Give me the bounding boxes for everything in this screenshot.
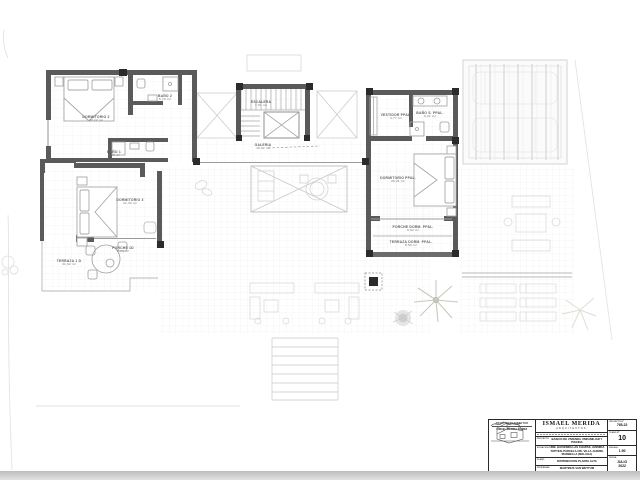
cell-plano-num: PLANO Nº 10 (608, 431, 636, 446)
room-label-bano-ppal: BAÑO S. PPAL.6,21 m² (406, 111, 454, 119)
firm-header: ISMAEL MERIDA ARQUITECTOS (536, 420, 608, 433)
row-plano: PLANO DISTRIBUCION PLANTA ALTA (536, 458, 608, 466)
signature-icon (489, 420, 523, 428)
firm-subtitle: ARQUITECTOS (536, 428, 608, 430)
title-block: ARQUITECTO DIRECTOR ISMAEL MERIDA GOMEZ … (488, 419, 637, 472)
floor-plan-canvas (0, 0, 640, 480)
edge-plant (2, 256, 18, 275)
pergola-roof (463, 60, 567, 164)
room-label-bano-2: BAÑO 25,76 m² (143, 94, 187, 102)
bed-dormitorio-3 (77, 177, 117, 246)
room-label-dormitorio-2: DORMITORIO 222,22 m² (66, 115, 126, 123)
title-block-meta: PROYECTO Nº 765-22 PLANO Nº 10 ESCALA 1:… (608, 420, 636, 471)
room-label-porche-dorm-ppal: PORCHE DORM. PPAL.9,02 m² (381, 225, 445, 233)
row-situacion: SITUACION URB. HACIENDA LAS CHAPAS, AVEN… (536, 446, 608, 458)
garden-steps (272, 338, 338, 400)
cell-proyecto-num: PROYECTO Nº 765-22 (608, 420, 636, 431)
cell-fecha: FECHA JULIO 2022 (608, 456, 636, 471)
room-label-escalera: ESCALERA7,91 m² (238, 100, 284, 108)
architect-stamp: ARQUITECTO DIRECTOR ISMAEL MERIDA GOMEZ (489, 420, 536, 471)
room-label-porche-1d: PORCHE 1D3,74 m² (98, 246, 148, 254)
room-label-galeria: GALERIA18,02 m² (240, 143, 286, 151)
cell-escala: ESCALA 1:50 (608, 446, 636, 456)
room-label-dormitorio-3: DORMITORIO 321,34 m² (104, 198, 156, 206)
title-block-center: ISMAEL MERIDA ARQUITECTOS PROYECTO BASIC… (536, 420, 609, 471)
room-label-bano-1: BAÑO 15,29 m² (92, 150, 136, 158)
room-label-dormitorio-ppal: DORMITORIO PPAL.26,21 m² (372, 176, 424, 184)
room-label-terraza-dorm-ppal: TERRAZA DORM. PPAL.8,50 m² (379, 240, 443, 248)
room-label-terraza-1d: TERRAZA 1 D31,62 m² (44, 259, 94, 267)
drawing-sheet: DORMITORIO 222,22 m² BAÑO 25,76 m² BAÑO … (0, 0, 640, 480)
rooflight (247, 55, 301, 71)
page-edge-shadow (0, 471, 640, 480)
